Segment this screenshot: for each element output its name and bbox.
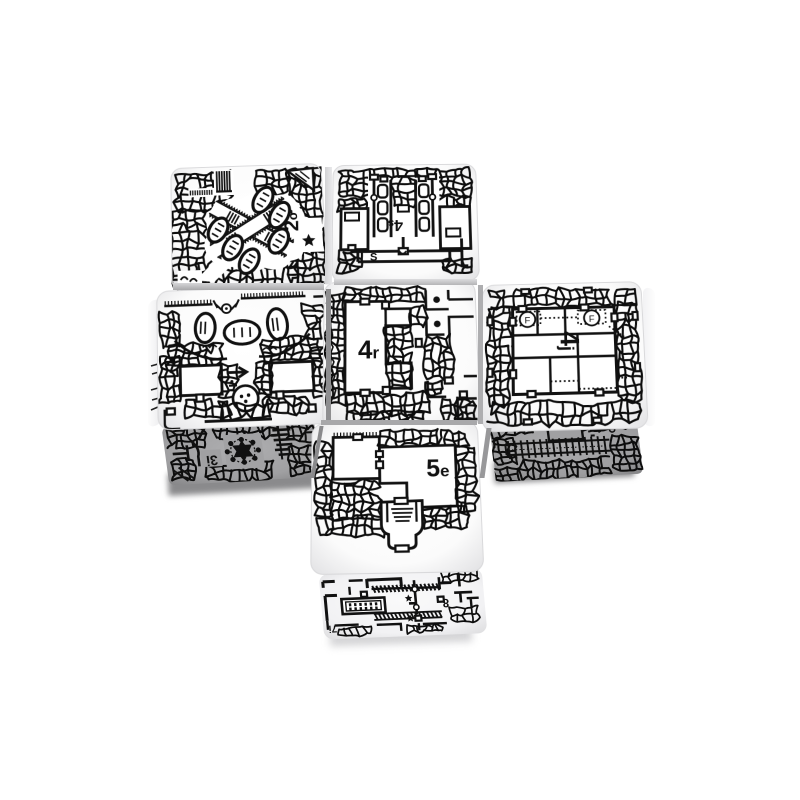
svg-text:F: F: [589, 314, 595, 324]
svg-text:3i: 3i: [205, 452, 219, 468]
svg-text:2o: 2o: [281, 212, 304, 231]
svg-text:F: F: [525, 315, 531, 325]
svg-text:7i: 7i: [328, 622, 338, 633]
svg-text:S: S: [370, 251, 377, 263]
